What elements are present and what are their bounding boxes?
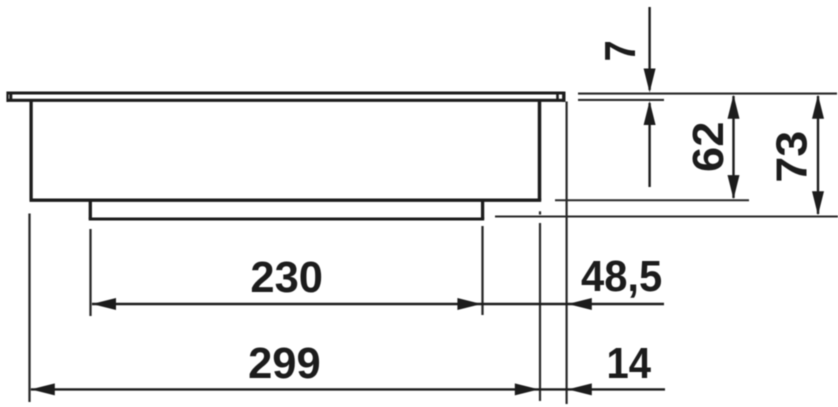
svg-text:62: 62 xyxy=(685,122,733,172)
svg-text:48,5: 48,5 xyxy=(581,252,662,301)
svg-text:7: 7 xyxy=(596,40,645,61)
svg-text:73: 73 xyxy=(767,131,816,183)
svg-text:230: 230 xyxy=(250,254,323,302)
svg-text:299: 299 xyxy=(248,340,321,388)
svg-text:14: 14 xyxy=(606,339,651,388)
